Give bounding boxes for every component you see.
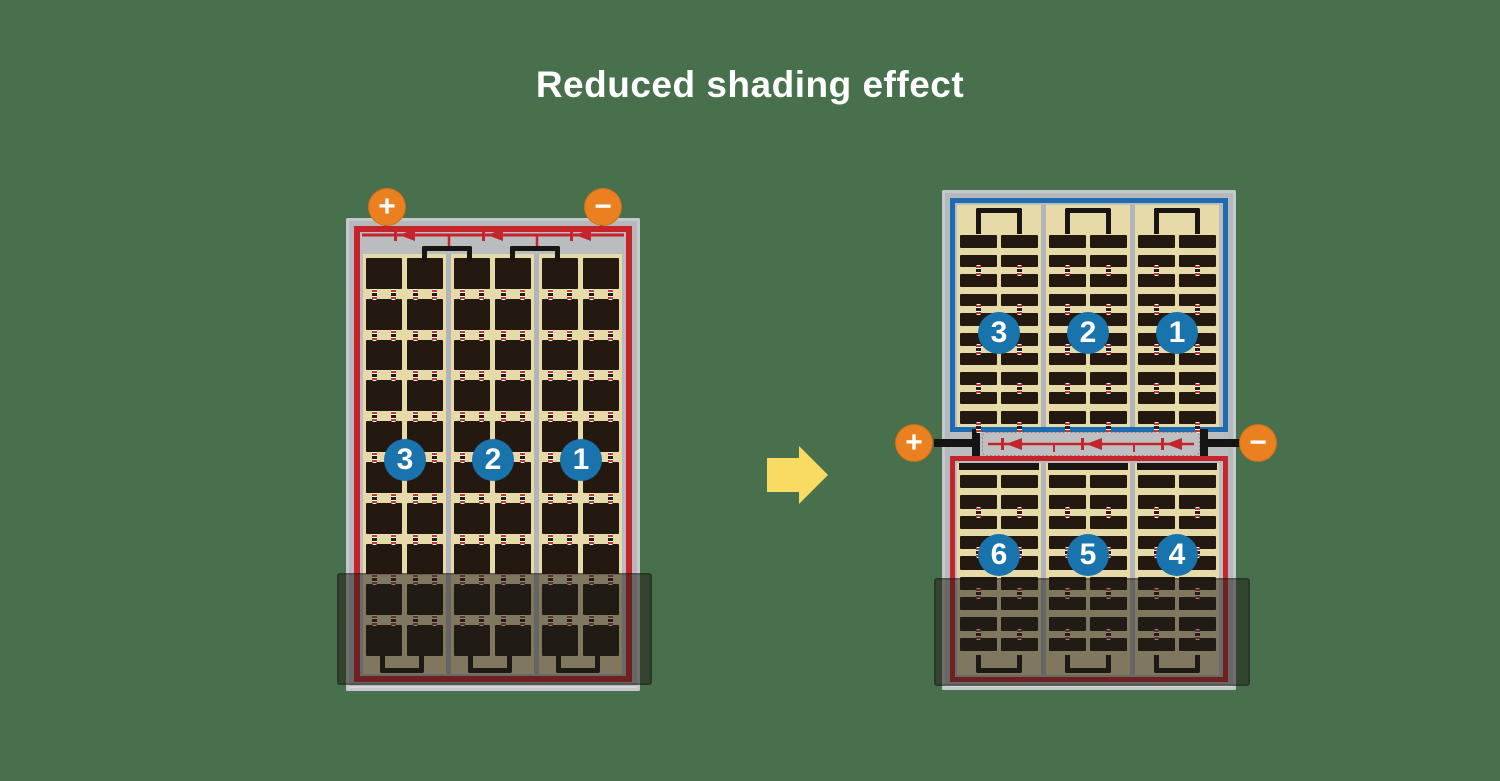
solar-cell (454, 340, 490, 371)
solar-cell (542, 340, 578, 371)
solar-cell (583, 299, 619, 330)
solar-cell (542, 544, 578, 575)
solar-cell (1179, 411, 1216, 424)
solar-cell (454, 299, 490, 330)
shading-effect-diagram: Reduced shading effect + − (0, 0, 1500, 781)
solar-cell (454, 380, 490, 411)
solar-cell (1179, 235, 1216, 248)
solar-cell (583, 258, 619, 289)
plus-icon: + (378, 192, 396, 222)
solar-cell (1090, 475, 1127, 488)
solar-cell (1179, 274, 1216, 287)
plus-icon: + (905, 428, 923, 458)
solar-cell (1090, 372, 1127, 385)
solar-cell (960, 495, 997, 508)
solar-cell (495, 340, 531, 371)
solar-cell (1090, 294, 1127, 307)
solar-cell (366, 544, 402, 575)
solar-cell (1001, 475, 1038, 488)
section-number: 2 (1080, 316, 1097, 350)
bus-stub (1200, 429, 1208, 459)
solar-cell (1001, 372, 1038, 385)
solar-cell (1138, 411, 1175, 424)
solar-cell (1001, 274, 1038, 287)
solar-cell (1001, 255, 1038, 268)
bypass-diode-bus (982, 432, 1200, 456)
solar-cell (1090, 411, 1127, 424)
section-number-badge: 3 (384, 439, 426, 481)
section-number-badge: 2 (472, 439, 514, 481)
solar-cell (1138, 255, 1175, 268)
solar-cell (495, 544, 531, 575)
solar-cell (960, 294, 997, 307)
positive-lead-wire (934, 439, 974, 447)
solar-cell (366, 299, 402, 330)
section-number-badge: 1 (1156, 312, 1198, 354)
section-number: 4 (1169, 538, 1186, 572)
bypass-diode-bus (360, 229, 626, 251)
solar-cell (1179, 294, 1216, 307)
solar-cell (1001, 495, 1038, 508)
solar-cell (1138, 475, 1175, 488)
interconnect-ribbon (1154, 208, 1200, 234)
shade-overlay (934, 578, 1250, 686)
solar-cell (960, 411, 997, 424)
solar-cell (1090, 235, 1127, 248)
solar-cell (495, 299, 531, 330)
solar-cell (1049, 274, 1086, 287)
solar-cell (1049, 475, 1086, 488)
minus-icon: − (594, 192, 612, 222)
solar-cell (1049, 495, 1086, 508)
section-number: 2 (485, 443, 502, 477)
diagram-title: Reduced shading effect (0, 64, 1500, 106)
solar-cell (542, 503, 578, 534)
section-number-badge: 1 (560, 439, 602, 481)
right-arrow-icon (765, 442, 831, 508)
section-number: 5 (1080, 538, 1097, 572)
solar-cell (1138, 235, 1175, 248)
solar-cell (1179, 255, 1216, 268)
solar-cell (1090, 495, 1127, 508)
solar-cell (495, 258, 531, 289)
solar-cell (1138, 495, 1175, 508)
solar-cell (960, 255, 997, 268)
solar-cell (583, 503, 619, 534)
positive-terminal: + (895, 424, 933, 462)
section-number: 3 (397, 443, 414, 477)
minus-icon: − (1249, 428, 1267, 458)
solar-cell (960, 235, 997, 248)
solar-cell (542, 299, 578, 330)
negative-terminal: − (584, 188, 622, 226)
solar-cell (366, 258, 402, 289)
section-number-badge: 6 (978, 534, 1020, 576)
section-number-badge: 4 (1156, 534, 1198, 576)
solar-cell (1179, 495, 1216, 508)
solar-cell (454, 544, 490, 575)
solar-cell (454, 503, 490, 534)
solar-cell (495, 503, 531, 534)
solar-cell (407, 258, 443, 289)
solar-cell (366, 503, 402, 534)
solar-cell (1090, 255, 1127, 268)
solar-cell (1001, 235, 1038, 248)
section-number: 6 (991, 538, 1008, 572)
section-number: 1 (1169, 316, 1186, 350)
shade-overlay (337, 573, 652, 685)
solar-cell (454, 258, 490, 289)
solar-cell (407, 544, 443, 575)
section-number-badge: 5 (1067, 534, 1109, 576)
section-number: 1 (573, 443, 590, 477)
solar-cell (407, 340, 443, 371)
interconnect-ribbon (1137, 463, 1217, 470)
section-number-badge: 3 (978, 312, 1020, 354)
solar-cell (960, 372, 997, 385)
solar-cell (960, 274, 997, 287)
solar-cell (1049, 411, 1086, 424)
interconnect-ribbon (510, 246, 560, 262)
solar-cell (366, 380, 402, 411)
solar-cell (407, 299, 443, 330)
solar-cell (366, 340, 402, 371)
solar-cell (407, 380, 443, 411)
interconnect-ribbon (1065, 208, 1111, 234)
interconnect-ribbon (1048, 463, 1128, 470)
solar-cell (1138, 274, 1175, 287)
section-number-badge: 2 (1067, 312, 1109, 354)
solar-cell (407, 503, 443, 534)
solar-cell (542, 380, 578, 411)
solar-cell (542, 258, 578, 289)
solar-cell (583, 380, 619, 411)
solar-cell (1138, 294, 1175, 307)
solar-cell (1090, 274, 1127, 287)
solar-cell (1049, 372, 1086, 385)
interconnect-ribbon (976, 208, 1022, 234)
solar-cell (1179, 475, 1216, 488)
negative-terminal: − (1239, 424, 1277, 462)
solar-cell (583, 340, 619, 371)
bus-stub (972, 429, 980, 459)
solar-cell (960, 475, 997, 488)
solar-cell (495, 380, 531, 411)
positive-terminal: + (368, 188, 406, 226)
solar-cell (1138, 372, 1175, 385)
solar-cell (583, 544, 619, 575)
solar-cell (1001, 411, 1038, 424)
interconnect-ribbon (422, 246, 472, 262)
solar-cell (1049, 294, 1086, 307)
solar-cell (1001, 294, 1038, 307)
solar-cell (1179, 372, 1216, 385)
solar-cell (1049, 255, 1086, 268)
solar-cell (1049, 235, 1086, 248)
interconnect-ribbon (959, 463, 1039, 470)
section-number: 3 (991, 316, 1008, 350)
